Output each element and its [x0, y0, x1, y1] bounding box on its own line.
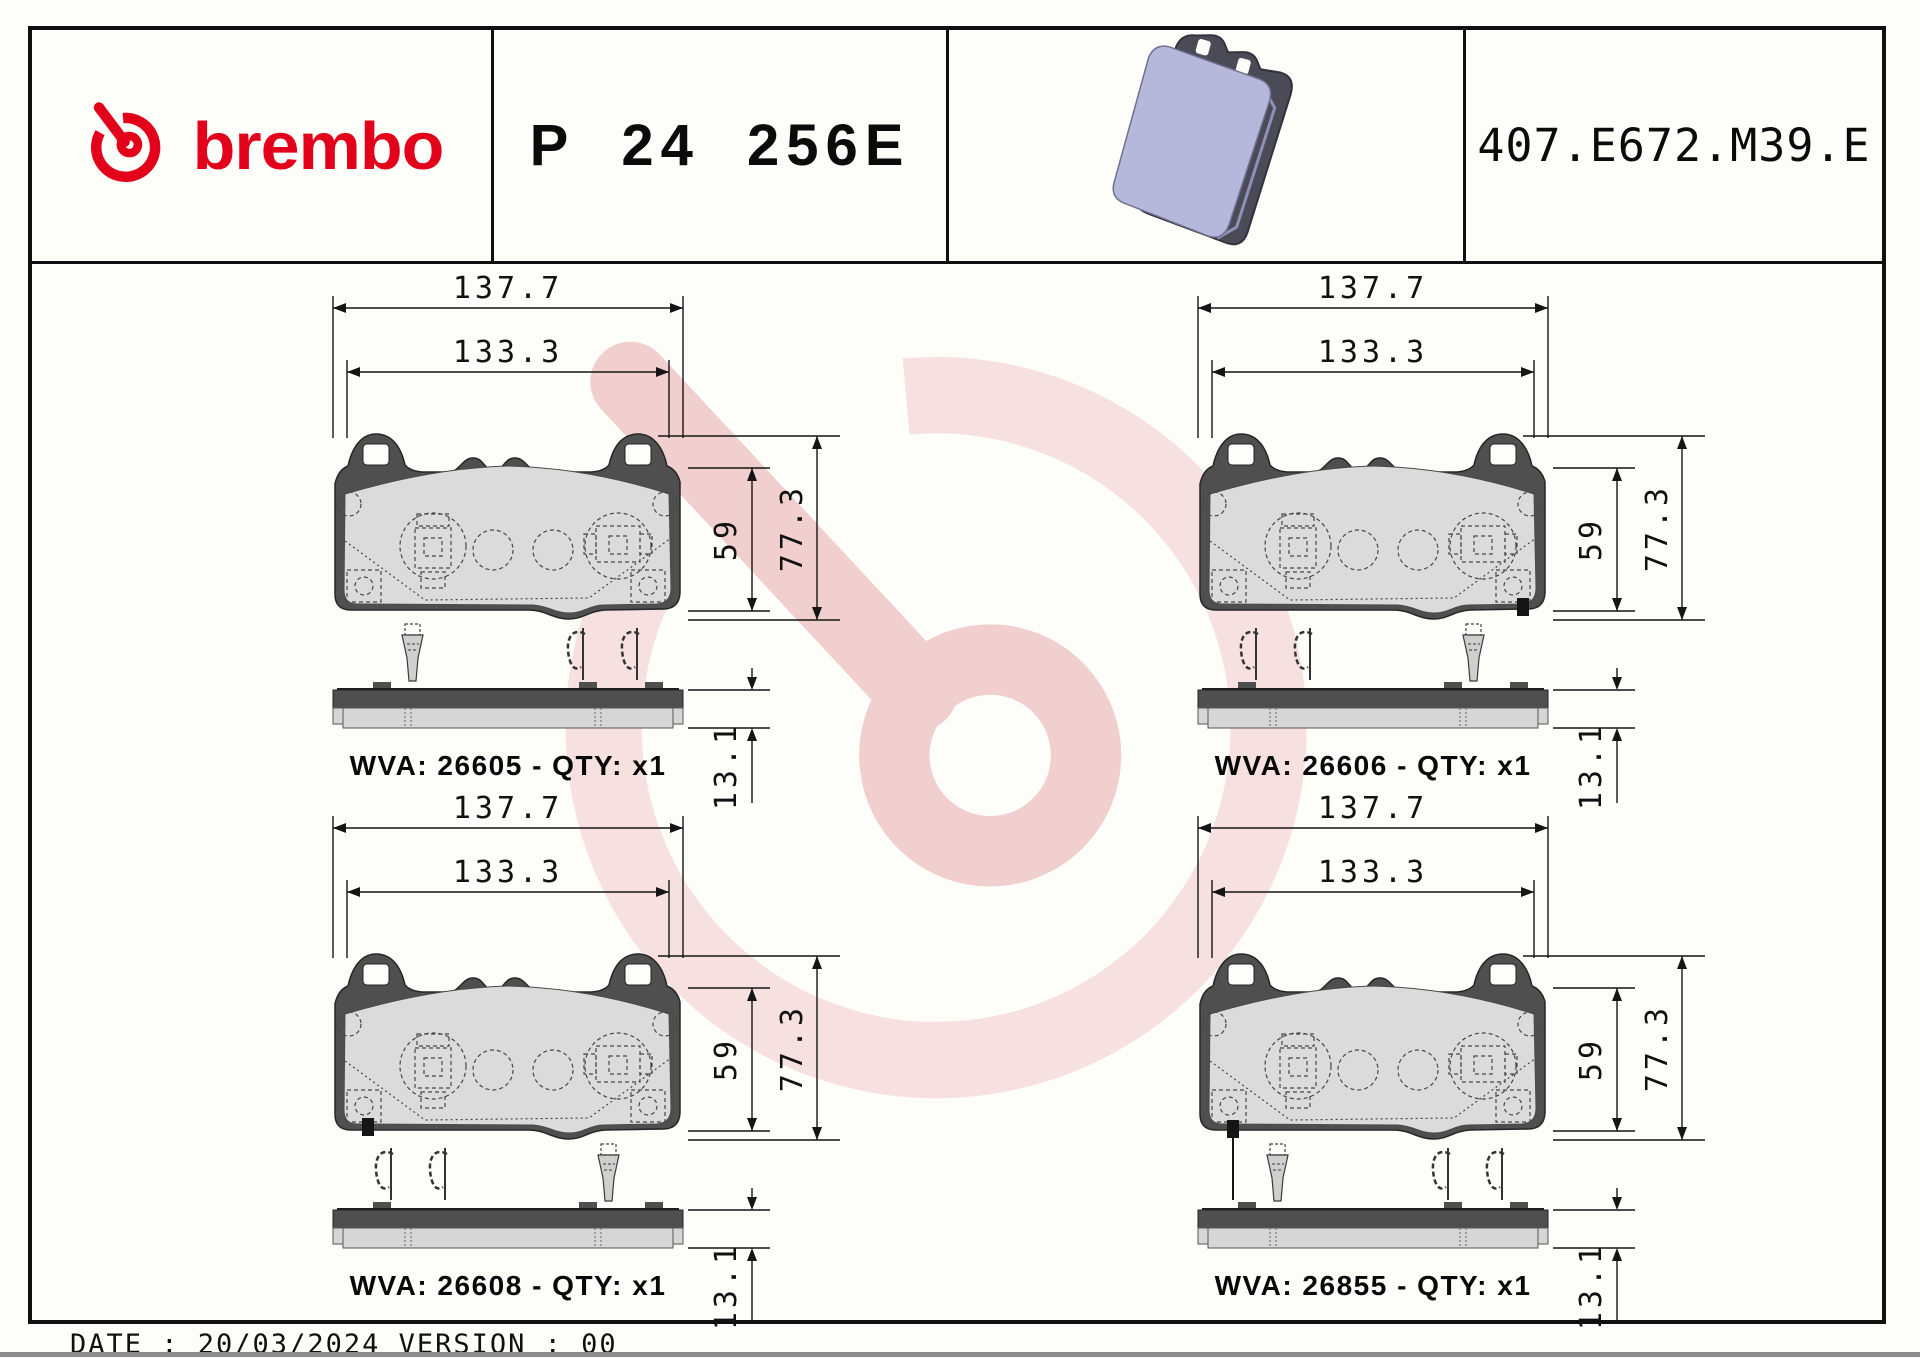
page-bottom-divider	[0, 1352, 1920, 1357]
part-number: P 24 256E	[530, 112, 911, 179]
drawing-top-right: WVA: 26606 - QTY: x1	[1165, 268, 1725, 813]
wva-qty-label: WVA: 26605 - QTY: x1	[350, 750, 667, 781]
datasheet-page: 137.7 133.3 59 77.3 13.1	[0, 0, 1920, 1358]
wva-qty-label: WVA: 26855 - QTY: x1	[1215, 1270, 1532, 1301]
brembo-logo-icon	[80, 98, 175, 193]
brake-pad-3d-render-icon	[1031, 32, 1381, 260]
drawing-bottom-left: WVA: 26608 - QTY: x1	[300, 788, 860, 1333]
catalog-reference: 407.E672.M39.E	[1477, 119, 1870, 172]
brand-wordmark: brembo	[193, 112, 444, 179]
wear-sensor	[362, 1118, 374, 1136]
product-image-cell	[949, 30, 1466, 261]
wva-qty-label: WVA: 26608 - QTY: x1	[350, 1270, 667, 1301]
wva-qty-label: WVA: 26606 - QTY: x1	[1215, 750, 1532, 781]
drawing-top-left: WVA: 26605 - QTY: x1	[300, 268, 860, 813]
part-number-cell: P 24 256E	[494, 30, 949, 261]
brand-cell: brembo	[32, 30, 494, 261]
drawing-bottom-right: WVA: 26855 - QTY: x1	[1165, 788, 1725, 1333]
catalog-reference-cell: 407.E672.M39.E	[1466, 30, 1882, 261]
wear-sensor	[1517, 598, 1529, 616]
wear-sensor	[1227, 1120, 1239, 1138]
title-block: brembo P 24 256E 407.E672.M3	[32, 30, 1882, 264]
